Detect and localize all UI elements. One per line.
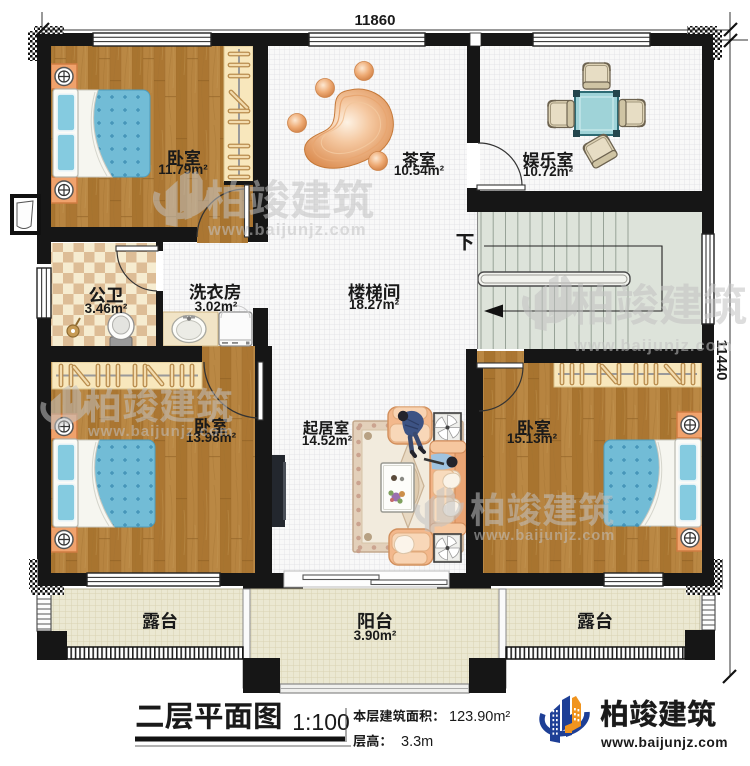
svg-text:10.72m²: 10.72m²	[523, 164, 574, 179]
svg-text:3.3m: 3.3m	[401, 734, 433, 750]
svg-text:www.baijunjz.com: www.baijunjz.com	[600, 735, 728, 750]
svg-text:1:100: 1:100	[292, 709, 350, 735]
svg-text:18.27m²: 18.27m²	[349, 297, 400, 312]
svg-text:15.13m²: 15.13m²	[507, 431, 558, 446]
svg-text:3.90m²: 3.90m²	[354, 628, 397, 643]
svg-text:www.baijunjz.com: www.baijunjz.com	[87, 423, 233, 440]
svg-text:www.baijunjz.com: www.baijunjz.com	[473, 528, 615, 544]
svg-text:3.46m²: 3.46m²	[85, 301, 128, 316]
svg-text:3.02m²: 3.02m²	[195, 299, 238, 314]
svg-text:www.baijunjz.com: www.baijunjz.com	[573, 337, 732, 355]
svg-text:14.52m²: 14.52m²	[302, 433, 353, 448]
svg-text:123.90m²: 123.90m²	[449, 709, 510, 725]
svg-text:www.baijunjz.com: www.baijunjz.com	[207, 221, 366, 239]
svg-text:10.54m²: 10.54m²	[394, 163, 445, 178]
svg-text:11860: 11860	[355, 12, 396, 29]
